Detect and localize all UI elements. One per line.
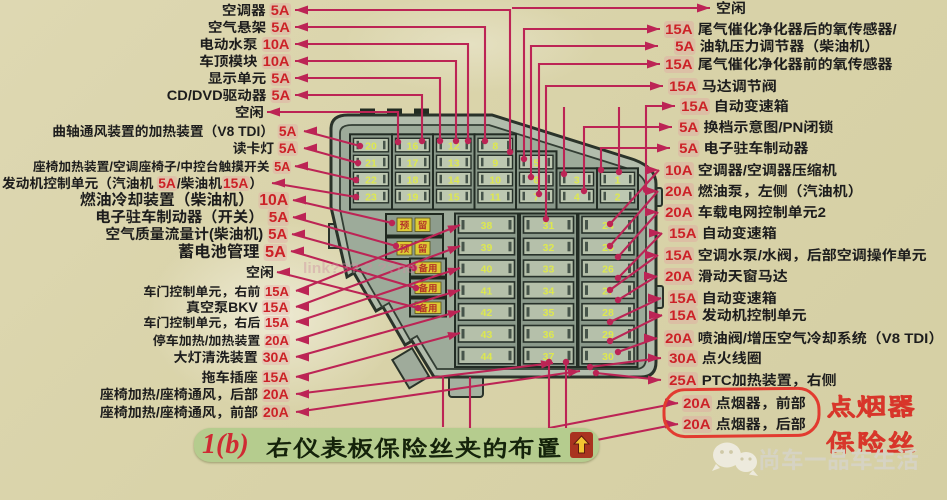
svg-text:31: 31 <box>543 220 555 232</box>
svg-text:17: 17 <box>407 157 419 169</box>
svg-text:14: 14 <box>448 174 460 186</box>
svg-text:备用: 备用 <box>418 281 437 295</box>
svg-text:32: 32 <box>543 242 555 254</box>
svg-text:22: 22 <box>365 174 377 186</box>
svg-text:39: 39 <box>481 242 493 254</box>
svg-text:38: 38 <box>481 220 493 232</box>
svg-text:21: 21 <box>365 157 377 169</box>
svg-text:26: 26 <box>602 264 614 276</box>
svg-text:9: 9 <box>492 157 498 169</box>
svg-text:4: 4 <box>574 191 580 203</box>
svg-text:35: 35 <box>543 307 555 319</box>
svg-text:留: 留 <box>418 241 428 255</box>
svg-text:44: 44 <box>481 351 493 363</box>
svg-text:8: 8 <box>492 140 498 152</box>
svg-text:20: 20 <box>365 140 377 152</box>
svg-text:留: 留 <box>418 218 428 232</box>
svg-text:30: 30 <box>602 351 614 363</box>
svg-text:19: 19 <box>407 191 419 203</box>
svg-text:1: 1 <box>615 174 621 186</box>
svg-text:23: 23 <box>365 191 377 203</box>
svg-text:43: 43 <box>481 329 493 341</box>
svg-text:42: 42 <box>481 307 493 319</box>
svg-text:41: 41 <box>481 285 493 297</box>
svg-text:34: 34 <box>543 285 555 297</box>
svg-text:36: 36 <box>543 329 555 341</box>
svg-text:16: 16 <box>407 140 419 152</box>
svg-text:18: 18 <box>407 174 419 186</box>
svg-text:40: 40 <box>481 264 493 276</box>
svg-text:10: 10 <box>489 174 501 186</box>
svg-text:2: 2 <box>615 191 621 203</box>
svg-text:预: 预 <box>400 218 410 232</box>
svg-text:15: 15 <box>448 191 460 203</box>
svg-text:28: 28 <box>602 307 614 319</box>
svg-text:3: 3 <box>574 174 580 186</box>
svg-text:11: 11 <box>490 191 501 203</box>
svg-text:备用: 备用 <box>418 261 437 275</box>
svg-text:33: 33 <box>543 264 555 276</box>
svg-text:13: 13 <box>448 157 460 169</box>
